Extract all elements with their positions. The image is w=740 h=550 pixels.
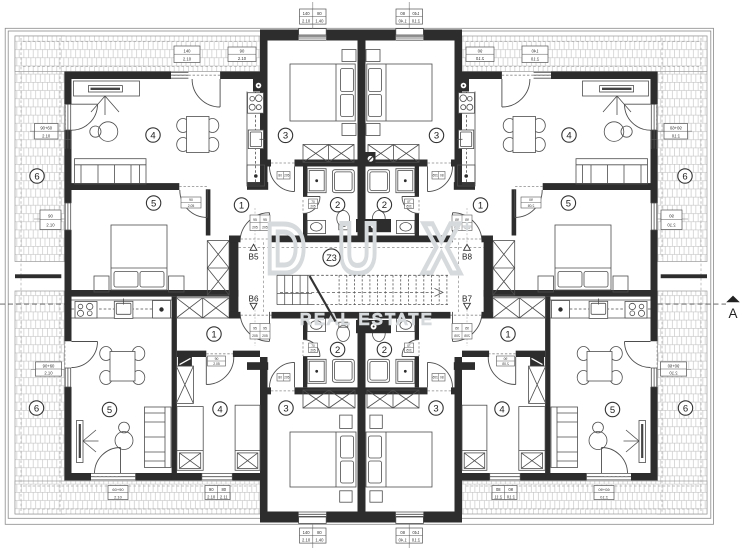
svg-text:1: 1: [211, 329, 216, 340]
svg-text:4: 4: [150, 130, 155, 141]
svg-text:2: 2: [335, 200, 340, 211]
svg-text:B5: B5: [248, 253, 258, 262]
svg-text:2: 2: [382, 200, 387, 211]
svg-text:6: 6: [683, 403, 688, 414]
svg-text:3: 3: [283, 403, 288, 414]
svg-text:B8: B8: [462, 253, 472, 262]
svg-text:3: 3: [434, 131, 439, 142]
svg-text:X: X: [422, 208, 461, 288]
svg-text:U: U: [338, 209, 378, 288]
svg-text:5: 5: [566, 198, 571, 209]
svg-text:B6: B6: [248, 295, 258, 304]
svg-text:1: 1: [505, 329, 510, 340]
svg-text:2: 2: [335, 345, 340, 356]
svg-text:1: 1: [478, 200, 483, 211]
svg-text:Z3: Z3: [326, 253, 337, 263]
svg-text:3: 3: [433, 403, 438, 414]
svg-text:A: A: [729, 306, 738, 321]
svg-text:4: 4: [499, 404, 504, 415]
svg-text:3: 3: [283, 131, 288, 142]
svg-text:1: 1: [239, 200, 244, 211]
svg-text:2: 2: [382, 345, 387, 356]
svg-text:4: 4: [566, 130, 571, 141]
svg-text:6: 6: [682, 171, 687, 182]
svg-text:4: 4: [217, 404, 222, 415]
svg-text:5: 5: [610, 405, 615, 416]
svg-text:5: 5: [151, 198, 156, 209]
svg-text:6: 6: [34, 171, 39, 182]
svg-text:B7: B7: [462, 295, 472, 304]
svg-text:6: 6: [34, 403, 39, 414]
svg-text:5: 5: [107, 405, 112, 416]
svg-text:REAL ESTATE: REAL ESTATE: [300, 312, 434, 329]
